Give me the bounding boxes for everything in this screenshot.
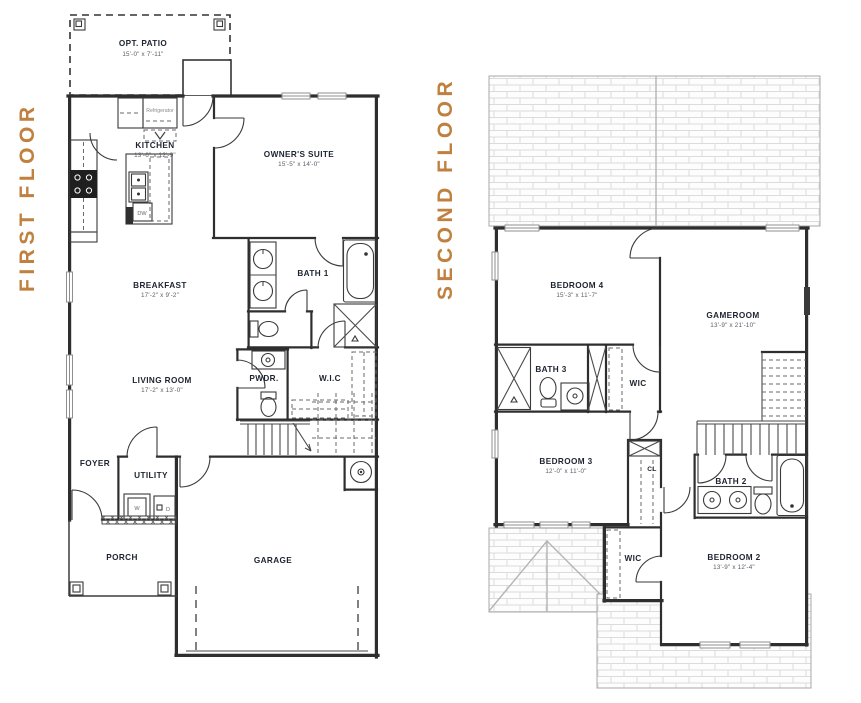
dims-owners-suite: 15'-5" x 14'-0" [278,161,320,168]
label-kitchen: KITCHEN [135,141,174,150]
label-wic-bath3: WIC [629,379,646,388]
label-bedroom3: BEDROOM 3 [539,457,592,466]
label-bedroom4: BEDROOM 4 [550,281,603,290]
label-living-room: LIVING ROOM [132,376,191,385]
label-garage: GARAGE [254,556,292,565]
dims-bedroom4: 15'-3" x 11'-7" [556,292,597,299]
label-refrigerator: Refrigerator [146,108,174,114]
label-bath1: BATH 1 [297,269,328,278]
window [740,642,770,648]
first-floor-plan: FIRST FLOOR OPT. PATIO 15'-0" x 7'-11" [16,15,378,658]
porch-post [70,582,83,595]
second-floor-plan: SECOND FLOOR [434,76,820,688]
label-powder: PWDR. [249,374,278,383]
label-closet: CL [647,466,656,473]
window [492,252,498,280]
window [504,522,534,528]
window [700,642,730,648]
island-end [126,207,133,224]
label-gameroom: GAMEROOM [706,311,759,320]
window [67,355,73,385]
window [318,93,346,99]
label-foyer: FOYER [80,459,110,468]
gameroom-window [804,287,810,315]
window [282,93,310,99]
label-wic-bedroom2: WIC [624,554,641,563]
window [572,522,590,528]
label-breakfast: BREAKFAST [133,281,187,290]
dims-kitchen: 13'-6" x 12'-9" [134,152,176,159]
dims-living-room: 17'-2" x 13'-0" [141,387,183,394]
porch-post [158,582,171,595]
window [67,272,73,302]
dims-bedroom3: 12'-0" x 11'-0" [545,468,586,475]
dims-gameroom: 13'-9" x 21'-10" [710,322,755,329]
label-bath2: BATH 2 [715,477,746,486]
label-washer: W [134,506,140,512]
label-dryer: D [166,507,170,513]
label-utility: UTILITY [134,471,168,480]
label-bath3: BATH 3 [535,365,566,374]
label-porch: PORCH [106,553,138,562]
window [505,225,539,231]
label-opt-patio: OPT. PATIO [119,39,168,48]
window [766,225,799,231]
first-floor-title: FIRST FLOOR [16,103,39,293]
window [540,522,568,528]
label-dishwasher: DW [137,211,147,217]
range-stove [70,170,97,198]
label-wic: W.I.C [319,374,341,383]
porch-half-wall [102,516,176,524]
dims-bedroom2: 13'-9" x 12'-4" [713,564,755,571]
dims-breakfast: 17'-2" x 9'-2" [141,292,179,299]
opt-patio: OPT. PATIO 15'-0" x 7'-11" [70,15,231,96]
patio-landing [183,60,231,96]
second-floor-title: SECOND FLOOR [434,77,457,300]
floorplan-page: FIRST FLOOR OPT. PATIO 15'-0" x 7'-11" [0,0,861,703]
window [67,390,73,418]
label-bedroom2: BEDROOM 2 [707,553,760,562]
patio-post [214,19,225,30]
label-owners-suite: OWNER'S SUITE [264,150,335,159]
window [492,430,498,458]
floorplan-canvas: FIRST FLOOR OPT. PATIO 15'-0" x 7'-11" [0,0,861,703]
roof-lower-left [489,528,603,612]
patio-post [74,19,85,30]
dims-opt-patio: 15'-0" x 7'-11" [122,51,163,58]
roof-top [489,76,820,226]
